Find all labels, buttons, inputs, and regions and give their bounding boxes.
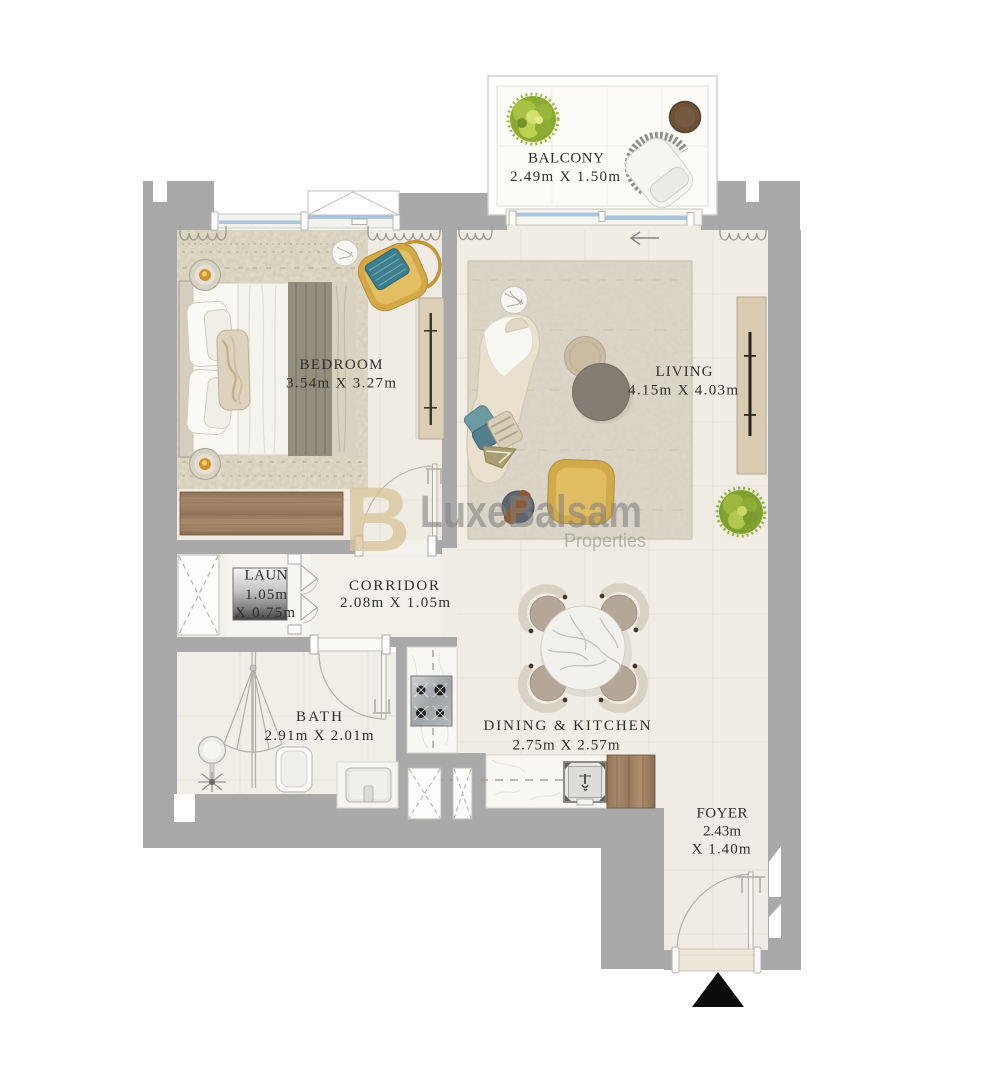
svg-text:4.15m X 4.03m: 4.15m X 4.03m [628, 383, 738, 399]
svg-text:X 1.40m: X 1.40m [692, 841, 751, 857]
svg-text:X 0.75m: X 0.75m [235, 605, 295, 621]
svg-text:2.49m X 1.50m: 2.49m X 1.50m [510, 169, 620, 185]
svg-text:BATH: BATH [296, 709, 342, 725]
svg-text:LuxeBalsam: LuxeBalsam [420, 486, 642, 537]
svg-text:2.91m X 2.01m: 2.91m X 2.01m [265, 728, 374, 744]
svg-text:2.08m X 1.05m: 2.08m X 1.05m [340, 595, 450, 611]
svg-text:LIVING: LIVING [656, 364, 713, 380]
svg-text:1.05m: 1.05m [245, 587, 287, 603]
svg-text:B: B [344, 469, 410, 571]
svg-text:2.43m: 2.43m [703, 824, 741, 840]
svg-text:2.75m X 2.57m: 2.75m X 2.57m [513, 738, 620, 754]
svg-text:FOYER: FOYER [697, 806, 748, 822]
svg-text:CORRIDOR: CORRIDOR [349, 578, 439, 594]
svg-text:LAUN: LAUN [245, 568, 288, 584]
svg-text:Properties: Properties [564, 531, 646, 552]
svg-text:3.54m X 3.27m: 3.54m X 3.27m [286, 376, 396, 392]
svg-text:BALCONY: BALCONY [528, 151, 604, 167]
svg-text:BEDROOM: BEDROOM [300, 357, 383, 373]
svg-text:DINING & KITCHEN: DINING & KITCHEN [484, 718, 651, 734]
